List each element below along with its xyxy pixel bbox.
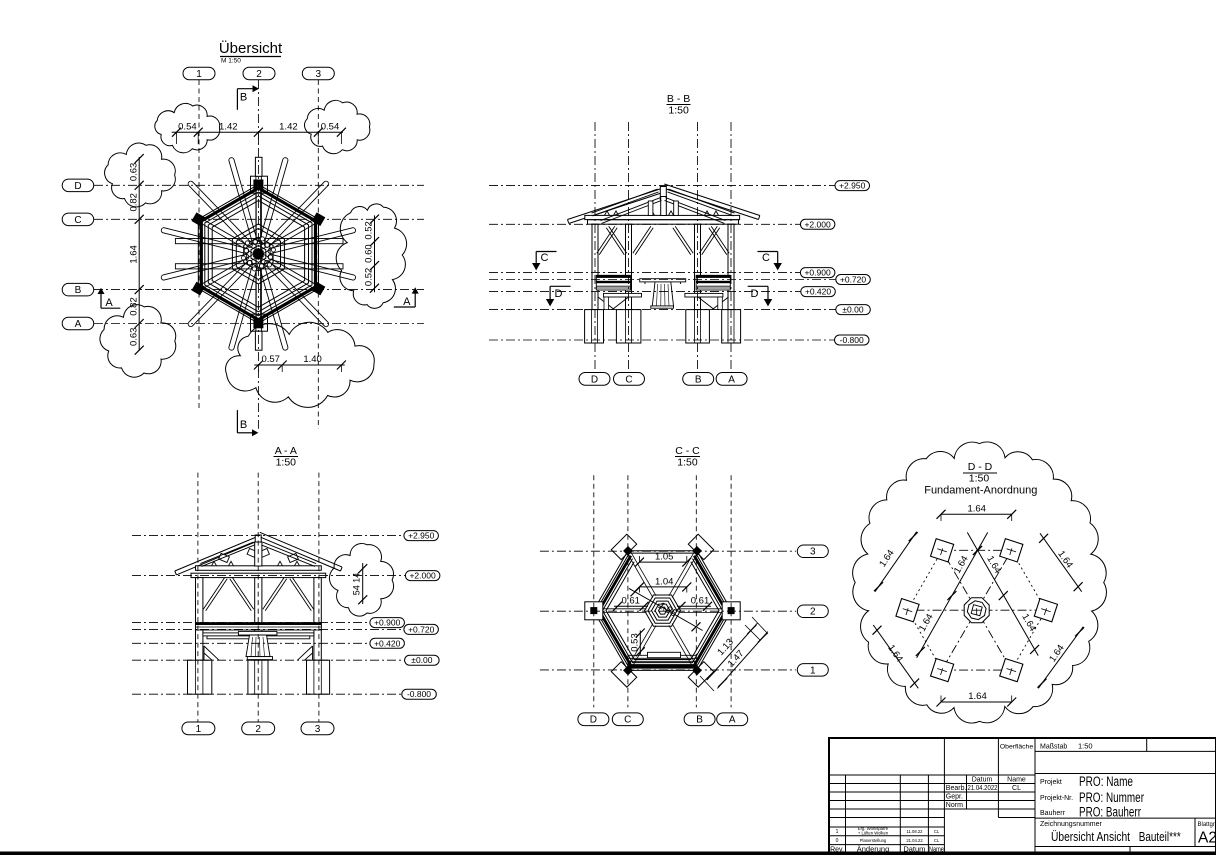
svg-text:+2.950: +2.950 xyxy=(408,531,435,541)
svg-text:0.53: 0.53 xyxy=(630,633,641,652)
svg-text:1.04: 1.04 xyxy=(655,576,674,587)
svg-text:A: A xyxy=(75,319,82,330)
svg-text:+0.720: +0.720 xyxy=(840,275,867,285)
svg-text:Blattgr: Blattgr xyxy=(1198,822,1215,828)
svg-text:+0.720: +0.720 xyxy=(408,624,435,634)
svg-text:3: 3 xyxy=(315,724,321,735)
svg-text:0.52: 0.52 xyxy=(364,268,375,287)
svg-text:D: D xyxy=(590,715,597,726)
svg-text:CL: CL xyxy=(1012,785,1021,792)
svg-text:Projekt: Projekt xyxy=(1040,779,1062,786)
svg-text:Gepr.: Gepr. xyxy=(946,794,963,801)
svg-text:0.82: 0.82 xyxy=(128,297,139,316)
svg-text:Bearb.: Bearb. xyxy=(946,785,967,792)
svg-text:1.42: 1.42 xyxy=(219,121,238,132)
svg-text:0.63: 0.63 xyxy=(128,163,139,182)
svg-text:0.61: 0.61 xyxy=(621,596,640,607)
svg-text:CL: CL xyxy=(934,829,940,834)
svg-text:Datum: Datum xyxy=(972,777,993,784)
svg-text:D: D xyxy=(555,288,563,300)
svg-text:D: D xyxy=(751,288,759,300)
svg-text:Norm: Norm xyxy=(946,802,963,809)
svg-text:0.61: 0.61 xyxy=(691,596,710,607)
svg-text:1:50: 1:50 xyxy=(677,457,698,469)
svg-text:±0.00: ±0.00 xyxy=(411,655,432,665)
svg-text:+0.900: +0.900 xyxy=(374,618,401,628)
svg-text:B: B xyxy=(240,92,247,104)
svg-text:C: C xyxy=(625,374,632,385)
svg-text:1:50: 1:50 xyxy=(668,105,689,117)
svg-text:A: A xyxy=(403,296,411,308)
svg-text:1.64: 1.64 xyxy=(968,691,987,702)
svg-text:B: B xyxy=(240,419,247,431)
svg-text:Name: Name xyxy=(1007,777,1026,784)
svg-text:1: 1 xyxy=(196,724,202,735)
svg-text:Planerstellung: Planerstellung xyxy=(860,838,887,843)
svg-text:A: A xyxy=(728,374,735,385)
svg-text:1:50: 1:50 xyxy=(276,457,297,469)
svg-text:-0.800: -0.800 xyxy=(407,689,431,699)
svg-text:Projekt-Nr.: Projekt-Nr. xyxy=(1040,795,1073,802)
svg-text:1.40: 1.40 xyxy=(303,354,322,365)
svg-text:B - B: B - B xyxy=(667,93,690,105)
svg-text:Oberfläche: Oberfläche xyxy=(1000,744,1033,751)
svg-text:C: C xyxy=(74,215,81,226)
svg-text:0.82: 0.82 xyxy=(128,193,139,212)
svg-text:C: C xyxy=(624,715,631,726)
svg-text:0.52: 0.52 xyxy=(364,221,375,240)
svg-text:0.60: 0.60 xyxy=(364,244,375,263)
svg-text:Übersicht: Übersicht xyxy=(219,39,283,57)
svg-text:1.05: 1.05 xyxy=(655,552,674,563)
svg-text:1:50: 1:50 xyxy=(1078,742,1093,751)
svg-text:C: C xyxy=(762,252,770,264)
svg-text:+2.000: +2.000 xyxy=(409,571,436,581)
svg-text:C: C xyxy=(541,252,549,264)
svg-text:A: A xyxy=(105,297,113,309)
svg-text:2: 2 xyxy=(255,724,261,735)
svg-text:+2.950: +2.950 xyxy=(839,181,866,191)
svg-text:C - C: C - C xyxy=(675,445,700,457)
svg-text:PRO: Name: PRO: Name xyxy=(1079,774,1133,789)
svg-text:1: 1 xyxy=(196,69,202,80)
svg-text:Maßstab: Maßstab xyxy=(1040,744,1067,751)
svg-text:0.63: 0.63 xyxy=(128,328,139,347)
svg-text:1.64: 1.64 xyxy=(128,245,139,264)
svg-text:3: 3 xyxy=(316,69,322,80)
svg-text:54 14: 54 14 xyxy=(352,573,362,596)
svg-text:0.54: 0.54 xyxy=(178,121,197,132)
svg-text:21.04.2022: 21.04.2022 xyxy=(968,785,998,792)
svg-text:PRO: Nummer: PRO: Nummer xyxy=(1079,790,1144,805)
svg-text:1: 1 xyxy=(810,665,816,676)
svg-text:Zeichnungsnummer: Zeichnungsnummer xyxy=(1040,821,1103,828)
svg-text:A2: A2 xyxy=(1198,830,1216,847)
svg-text:1:50: 1:50 xyxy=(969,473,990,485)
svg-text:3: 3 xyxy=(810,547,816,558)
svg-text:CL: CL xyxy=(934,838,940,843)
svg-text:M 1:50: M 1:50 xyxy=(221,58,241,65)
svg-text:2: 2 xyxy=(810,607,816,618)
svg-text:B: B xyxy=(695,374,702,385)
svg-text:2: 2 xyxy=(256,69,262,80)
svg-text:+2.000: +2.000 xyxy=(804,219,831,229)
svg-text:A: A xyxy=(729,715,736,726)
svg-text:Übersicht Ansicht: Übersicht Ansicht xyxy=(1051,829,1130,844)
svg-text:A - A: A - A xyxy=(275,445,297,457)
svg-text:1: 1 xyxy=(836,829,839,835)
svg-text:+ Lüften Wolken: + Lüften Wolken xyxy=(858,831,889,836)
svg-text:+0.420: +0.420 xyxy=(374,638,401,648)
svg-text:0.57: 0.57 xyxy=(261,354,280,365)
svg-text:PRO: Bauherr: PRO: Bauherr xyxy=(1079,805,1141,820)
svg-text:D: D xyxy=(591,374,598,385)
svg-text:-0.800: -0.800 xyxy=(840,335,864,345)
svg-text:1.42: 1.42 xyxy=(279,121,298,132)
svg-text:Fundament-Anordnung: Fundament-Anordnung xyxy=(924,485,1037,497)
svg-text:B: B xyxy=(75,285,82,296)
svg-text:Bauteil***: Bauteil*** xyxy=(1139,829,1181,844)
svg-text:D - D: D - D xyxy=(968,461,993,473)
svg-text:±0.00: ±0.00 xyxy=(842,305,863,315)
svg-text:0.54: 0.54 xyxy=(321,121,340,132)
svg-text:B: B xyxy=(696,715,703,726)
svg-text:21.04.22: 21.04.22 xyxy=(906,838,923,843)
svg-text:D: D xyxy=(74,181,81,192)
svg-text:11.08.22: 11.08.22 xyxy=(907,829,924,834)
svg-text:1.64: 1.64 xyxy=(967,503,986,514)
svg-text:0: 0 xyxy=(836,838,839,844)
svg-text:+0.900: +0.900 xyxy=(804,268,831,278)
svg-text:Bauherr: Bauherr xyxy=(1040,810,1066,817)
svg-text:+0.420: +0.420 xyxy=(805,287,832,297)
